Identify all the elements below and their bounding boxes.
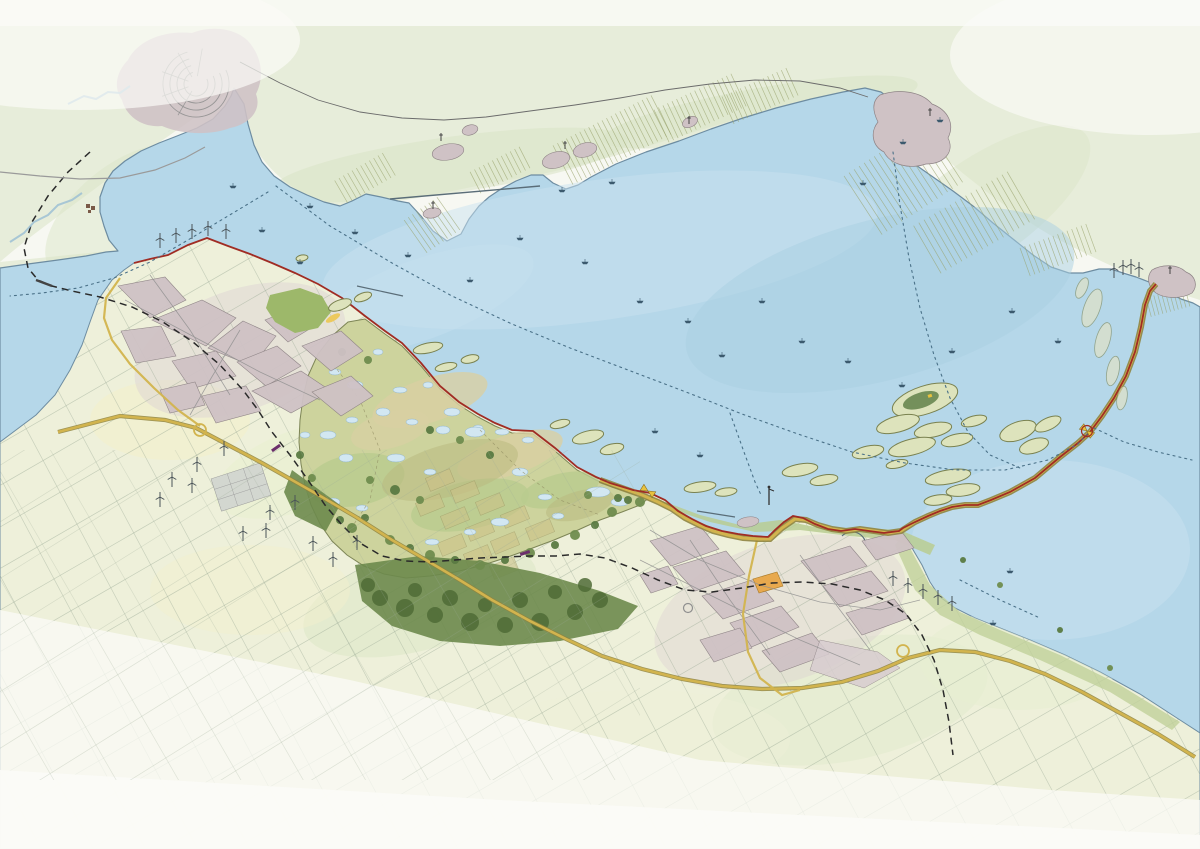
- pond: [491, 518, 509, 526]
- pond: [436, 426, 450, 434]
- forest-canopy: [548, 585, 562, 599]
- tree-icon: [570, 530, 580, 540]
- tree-icon: [390, 485, 400, 495]
- pond: [464, 529, 476, 535]
- pond: [512, 468, 528, 476]
- tree-icon: [364, 356, 372, 364]
- tree-icon: [1107, 665, 1113, 671]
- tree-icon: [551, 541, 559, 549]
- pond: [346, 417, 358, 423]
- tree-icon: [416, 496, 424, 504]
- pond: [495, 429, 509, 435]
- tree-icon: [366, 476, 374, 484]
- tree-icon: [614, 494, 622, 502]
- pond: [339, 454, 353, 462]
- tree-icon: [426, 426, 434, 434]
- map-canvas: [0, 0, 1200, 849]
- tree-icon: [607, 507, 617, 517]
- pond: [373, 349, 383, 355]
- tree-icon: [1057, 627, 1063, 633]
- pond: [425, 539, 439, 545]
- pond: [387, 454, 405, 462]
- pond: [300, 432, 310, 438]
- pond: [538, 494, 552, 500]
- pond: [393, 387, 407, 393]
- pond: [406, 419, 418, 425]
- pond: [552, 513, 564, 519]
- forest-canopy: [408, 583, 422, 597]
- forest-canopy: [578, 578, 592, 592]
- forest-canopy: [497, 617, 513, 633]
- pond: [423, 382, 433, 388]
- forest-canopy: [427, 607, 443, 623]
- pond: [356, 505, 368, 511]
- forest-canopy: [396, 599, 414, 617]
- pond: [376, 408, 390, 416]
- tree-icon: [456, 436, 464, 444]
- pond: [522, 437, 534, 443]
- map-illustration: [0, 0, 1200, 849]
- pond: [320, 431, 336, 439]
- forest-canopy: [361, 578, 375, 592]
- pond: [424, 469, 436, 475]
- tree-icon: [624, 496, 632, 504]
- pond: [444, 408, 460, 416]
- tree-icon: [960, 557, 966, 563]
- tree-icon: [997, 582, 1003, 588]
